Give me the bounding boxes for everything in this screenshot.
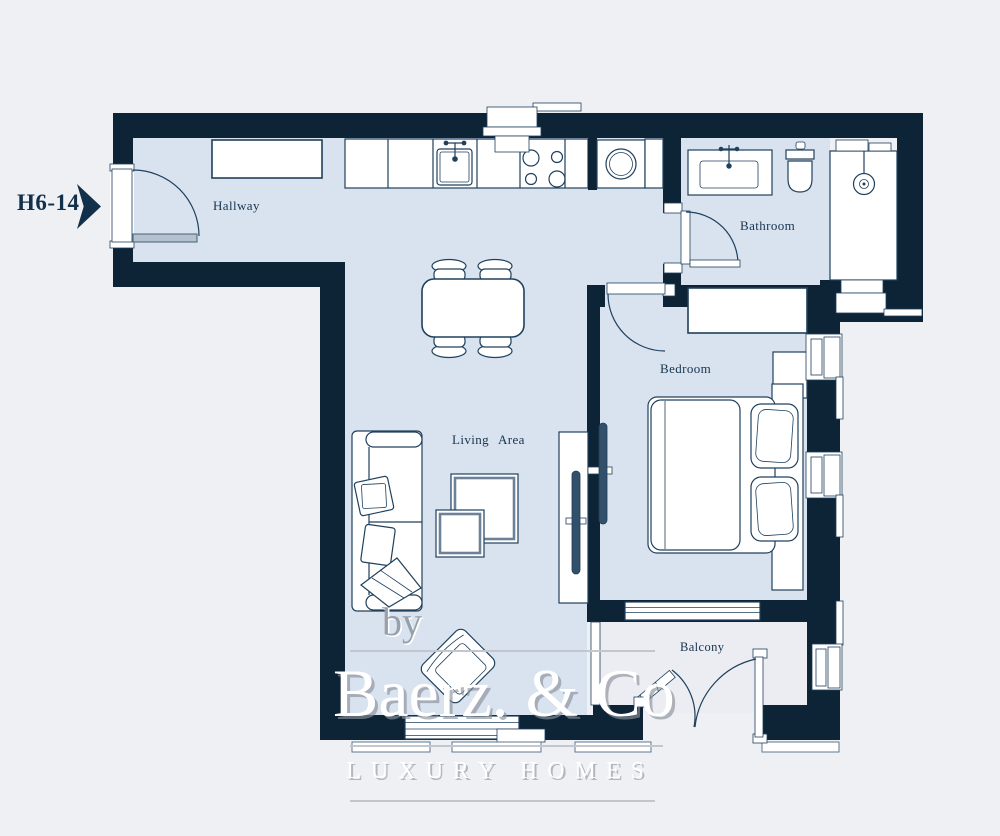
- tv-bedroom-icon: [588, 423, 612, 524]
- watermark-brand: Baerz. & Co: [333, 654, 667, 733]
- ac-vent-icon: [812, 601, 843, 690]
- room-label-living: Living Area: [452, 432, 525, 448]
- ac-vent-icon: [806, 452, 843, 537]
- room-label-bedroom: Bedroom: [660, 361, 711, 377]
- dining-table-icon: [422, 279, 524, 337]
- unit-label: H6-14: [17, 190, 80, 216]
- double-bed-icon: [648, 384, 803, 590]
- window-sills: [352, 742, 839, 752]
- kitchen-counter-end: [645, 139, 663, 188]
- room-label-balcony: Balcony: [680, 640, 724, 655]
- watermark-rule-bottom: [350, 800, 655, 802]
- sofa-icon: [352, 431, 422, 611]
- toilet-icon: [786, 142, 814, 192]
- watermark-rule-middle: [350, 745, 663, 747]
- shower-icon: [830, 140, 922, 316]
- bathroom-vanity-icon: [688, 145, 772, 195]
- entrance-door-icon: [110, 164, 199, 248]
- wardrobe-icon: [688, 288, 807, 333]
- ac-vent-icon: [806, 334, 843, 419]
- bedroom-door-icon: [607, 283, 675, 351]
- watermark-by: by: [382, 598, 422, 645]
- watermark-tagline: LUXURY HOMES: [335, 758, 665, 785]
- bedroom-window-icon: [625, 602, 760, 620]
- washing-machine-icon: [597, 140, 645, 188]
- watermark-rule-top: [350, 650, 655, 652]
- room-label-bathroom: Bathroom: [740, 218, 795, 234]
- hallway-closet-icon: [212, 140, 322, 178]
- kitchen-wall-pillar: [588, 138, 597, 190]
- coffee-tables-icon: [436, 474, 518, 557]
- floor-plan: H6-14 Hallway Bathroom Bedroom Living Ar…: [0, 0, 1000, 836]
- tv-living-icon: [559, 432, 588, 603]
- room-label-hallway: Hallway: [213, 198, 260, 214]
- bathroom-door-icon: [664, 203, 740, 273]
